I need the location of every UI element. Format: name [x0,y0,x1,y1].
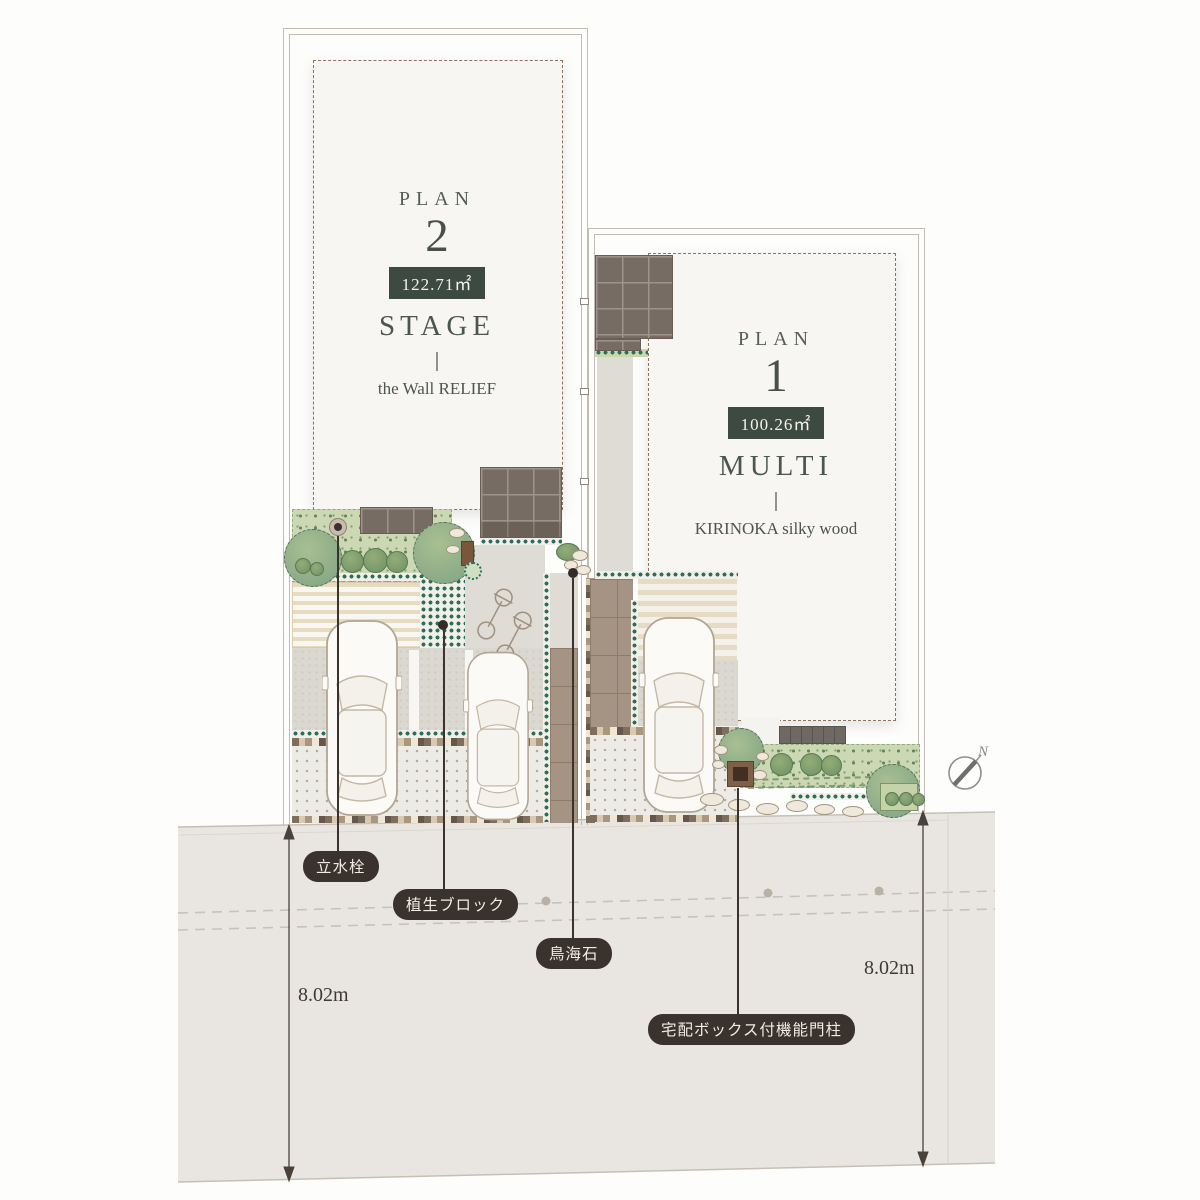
plot1-front-wall [779,726,846,744]
plan2-canopy-tile-edge [480,538,562,545]
chokai-stone-row [700,793,724,806]
leader-line-standpipe [337,536,339,851]
middle-path-upper [550,573,578,648]
plan1-name: MULTI [676,450,876,483]
plot2-tree-inner-shrub [295,558,311,574]
plan2-label: PLAN [337,188,537,211]
plot2-tree-large-left [284,529,342,587]
plan2-canopy-eave-shade [481,522,561,537]
plot1-paver-block [590,579,633,727]
leader-dot-vegetation-block [438,620,448,630]
chokai-stone-row [728,799,750,811]
boundary-marker [580,478,589,485]
plot2-stall-stripe [409,650,419,730]
plan2-area-badge: 122.71㎡ [389,267,486,299]
callout-gate-post: 宅配ボックス付機能門柱 [648,1014,855,1045]
road-dot [764,889,773,898]
chokai-stone-row [756,803,779,815]
plot2-garden-stone [449,528,465,538]
plan1-info: PLAN 1 100.26㎡ MULTI KIRINOKA silky wood [676,328,876,539]
plot2-agave-plant [464,562,482,580]
plot2-paver-strip [550,648,578,823]
plan1-subtitle: KIRINOKA silky wood [676,519,876,539]
plan1-canopy-roof [595,255,673,339]
north-label: N [977,744,989,760]
leader-line-gate-post [737,788,739,1014]
plan1-divider [775,492,777,511]
plan2-number: 2 [337,213,537,260]
car-top-view [461,650,535,822]
plot1-corner-shrub [885,792,899,806]
leader-line-chokai-stone [572,578,574,938]
leader-line-vegetation-block [443,630,445,889]
car-top-view [639,610,719,820]
dimension-left-label: 8.02m [298,984,349,1007]
plot2-tile-border-east [543,573,550,822]
callout-vegetation-block: 植生ブロック [393,889,518,920]
plot2-garden-stone [446,545,460,554]
plot1-shrub [770,753,793,776]
plan1-canopy-step [595,339,641,351]
gate-stone [712,760,725,769]
gate-stone [756,752,769,761]
boundary-marker [580,388,589,395]
site-plan-canvas: PLAN 2 122.71㎡ STAGE the Wall RELIEF PLA… [0,0,1200,1200]
callout-standpipe: 立水栓 [303,851,379,882]
plot1-corner-shrub [899,792,913,806]
plan1-approach-path [597,357,633,578]
callout-chokai-stone: 鳥海石 [536,938,612,969]
chokai-stone-row [842,806,864,817]
car-top-view [322,614,402,822]
plan1-number: 1 [676,353,876,400]
plan2-divider [436,352,438,371]
plan2-subtitle: the Wall RELIEF [337,379,537,399]
gate-stone [752,770,767,780]
standpipe-center [334,523,342,531]
chokai-stone [576,565,591,575]
chokai-stone [572,550,588,561]
plot1-tile-row [595,571,738,579]
dimension-right-label: 8.02m [864,957,915,980]
boundary-marker [580,298,589,305]
road-dot [542,897,551,906]
north-arrow-icon: N [936,740,996,800]
plot2-tree-inner-shrub [310,562,324,576]
plot1-corner-shrub [912,793,925,806]
plot2-shrub [386,551,408,573]
gate-stone [714,745,728,755]
delivery-box [733,767,748,781]
plot1-tile-border [631,600,638,728]
plan2-name: STAGE [337,310,537,343]
plan1-area-badge: 100.26㎡ [728,407,825,439]
leader-dot-chokai-stone [568,568,578,578]
chokai-stone-row [814,804,835,815]
road-dot [875,887,884,896]
plot1-shrub [821,755,842,776]
plot1-shrub [800,753,823,776]
plot2-shrub [341,550,364,573]
chokai-stone-row [786,800,808,812]
plan1-label: PLAN [676,328,876,351]
plot2-shrub [363,548,388,573]
plan2-info: PLAN 2 122.71㎡ STAGE the Wall RELIEF [337,188,537,399]
